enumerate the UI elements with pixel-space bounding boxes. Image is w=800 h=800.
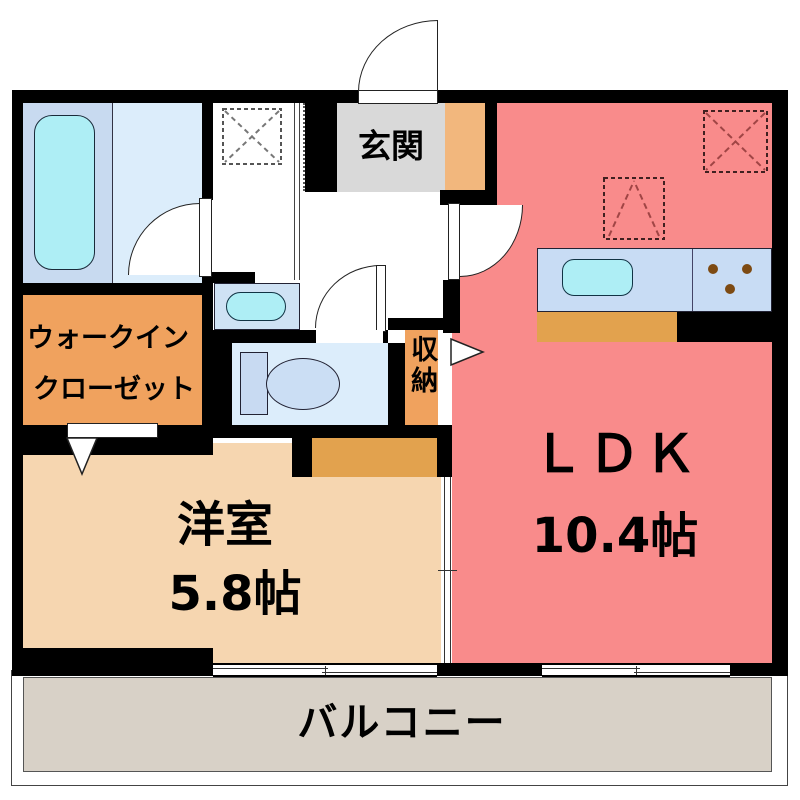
walk-in-closet-label-line2: クローゼット: [33, 376, 195, 404]
opening-arrow-down-icon: [64, 437, 100, 477]
wall: [202, 103, 213, 200]
washing-machine-space-icon: [222, 108, 282, 165]
bathtub: [34, 115, 95, 270]
floor-plan: 玄関 ＬＤＫ 10.4帖 洋室 5.8帖 ウォークイン クローゼット 収納 バル…: [0, 0, 800, 800]
wall: [437, 663, 542, 676]
western-room-size-label: 5.8帖: [168, 569, 301, 619]
wall: [12, 283, 213, 295]
window-pane-line: [322, 672, 437, 673]
toilet-tank: [240, 352, 268, 415]
wall: [388, 318, 452, 330]
wall: [388, 343, 405, 425]
wall: [12, 90, 23, 675]
kitchen-counter-base: [537, 312, 677, 342]
stove-burner: [742, 264, 752, 274]
balcony-label: バルコニー: [297, 702, 506, 744]
partition-line: [294, 103, 295, 280]
washroom-door-swing: [315, 265, 381, 328]
entrance-door-swing: [358, 20, 438, 92]
wall: [213, 330, 232, 425]
counter-strip: [312, 438, 437, 477]
toilet-door-opening: [316, 330, 383, 343]
window-pane-line: [542, 668, 640, 669]
wall: [213, 272, 255, 283]
wall: [730, 663, 788, 676]
wall: [202, 283, 213, 425]
partition-dotted-line: [303, 103, 305, 191]
window-pane-line: [634, 672, 730, 673]
wall: [677, 312, 772, 342]
wall: [12, 648, 213, 676]
wall: [438, 90, 788, 103]
entrance-label: 玄関: [358, 130, 424, 165]
window-pane-line: [213, 668, 328, 669]
wall: [213, 425, 452, 438]
shoe-cabinet: [445, 103, 485, 192]
dining-space-icon: [603, 177, 665, 240]
wall: [485, 103, 497, 192]
entrance-door-leaf: [358, 90, 438, 104]
refrigerator-space-icon: [703, 110, 768, 173]
wall: [772, 95, 788, 676]
toilet-bowl: [266, 358, 340, 410]
sliding-door-tick: [438, 570, 457, 571]
partition-line: [299, 103, 300, 280]
walk-in-closet-room: [22, 295, 202, 425]
walk-in-closet-label-line1: ウォークイン: [27, 325, 189, 353]
ldk-label: ＬＤＫ: [532, 428, 700, 483]
ldk-size-label: 10.4帖: [532, 511, 698, 561]
window: [213, 663, 437, 677]
wall: [305, 103, 337, 192]
closet-door-leaf: [67, 423, 158, 438]
wall: [12, 90, 358, 103]
bathroom-door-leaf: [199, 198, 212, 277]
western-room-label: 洋室: [177, 500, 273, 550]
window-center-tick: [325, 666, 326, 675]
window-center-tick: [636, 666, 637, 675]
storage-label: 収納: [407, 335, 435, 397]
stove-burner: [708, 264, 718, 274]
ldk-door-leaf: [448, 203, 460, 280]
kitchen-sink: [562, 259, 633, 296]
kitchen-counter-divider: [692, 249, 693, 311]
wall: [292, 438, 312, 477]
window: [542, 663, 730, 677]
washbasin-sink: [226, 292, 286, 321]
wall: [437, 438, 452, 477]
opening-arrow-right-icon: [450, 336, 486, 368]
stove-burner: [725, 284, 735, 294]
washroom-door-leaf: [376, 265, 386, 332]
